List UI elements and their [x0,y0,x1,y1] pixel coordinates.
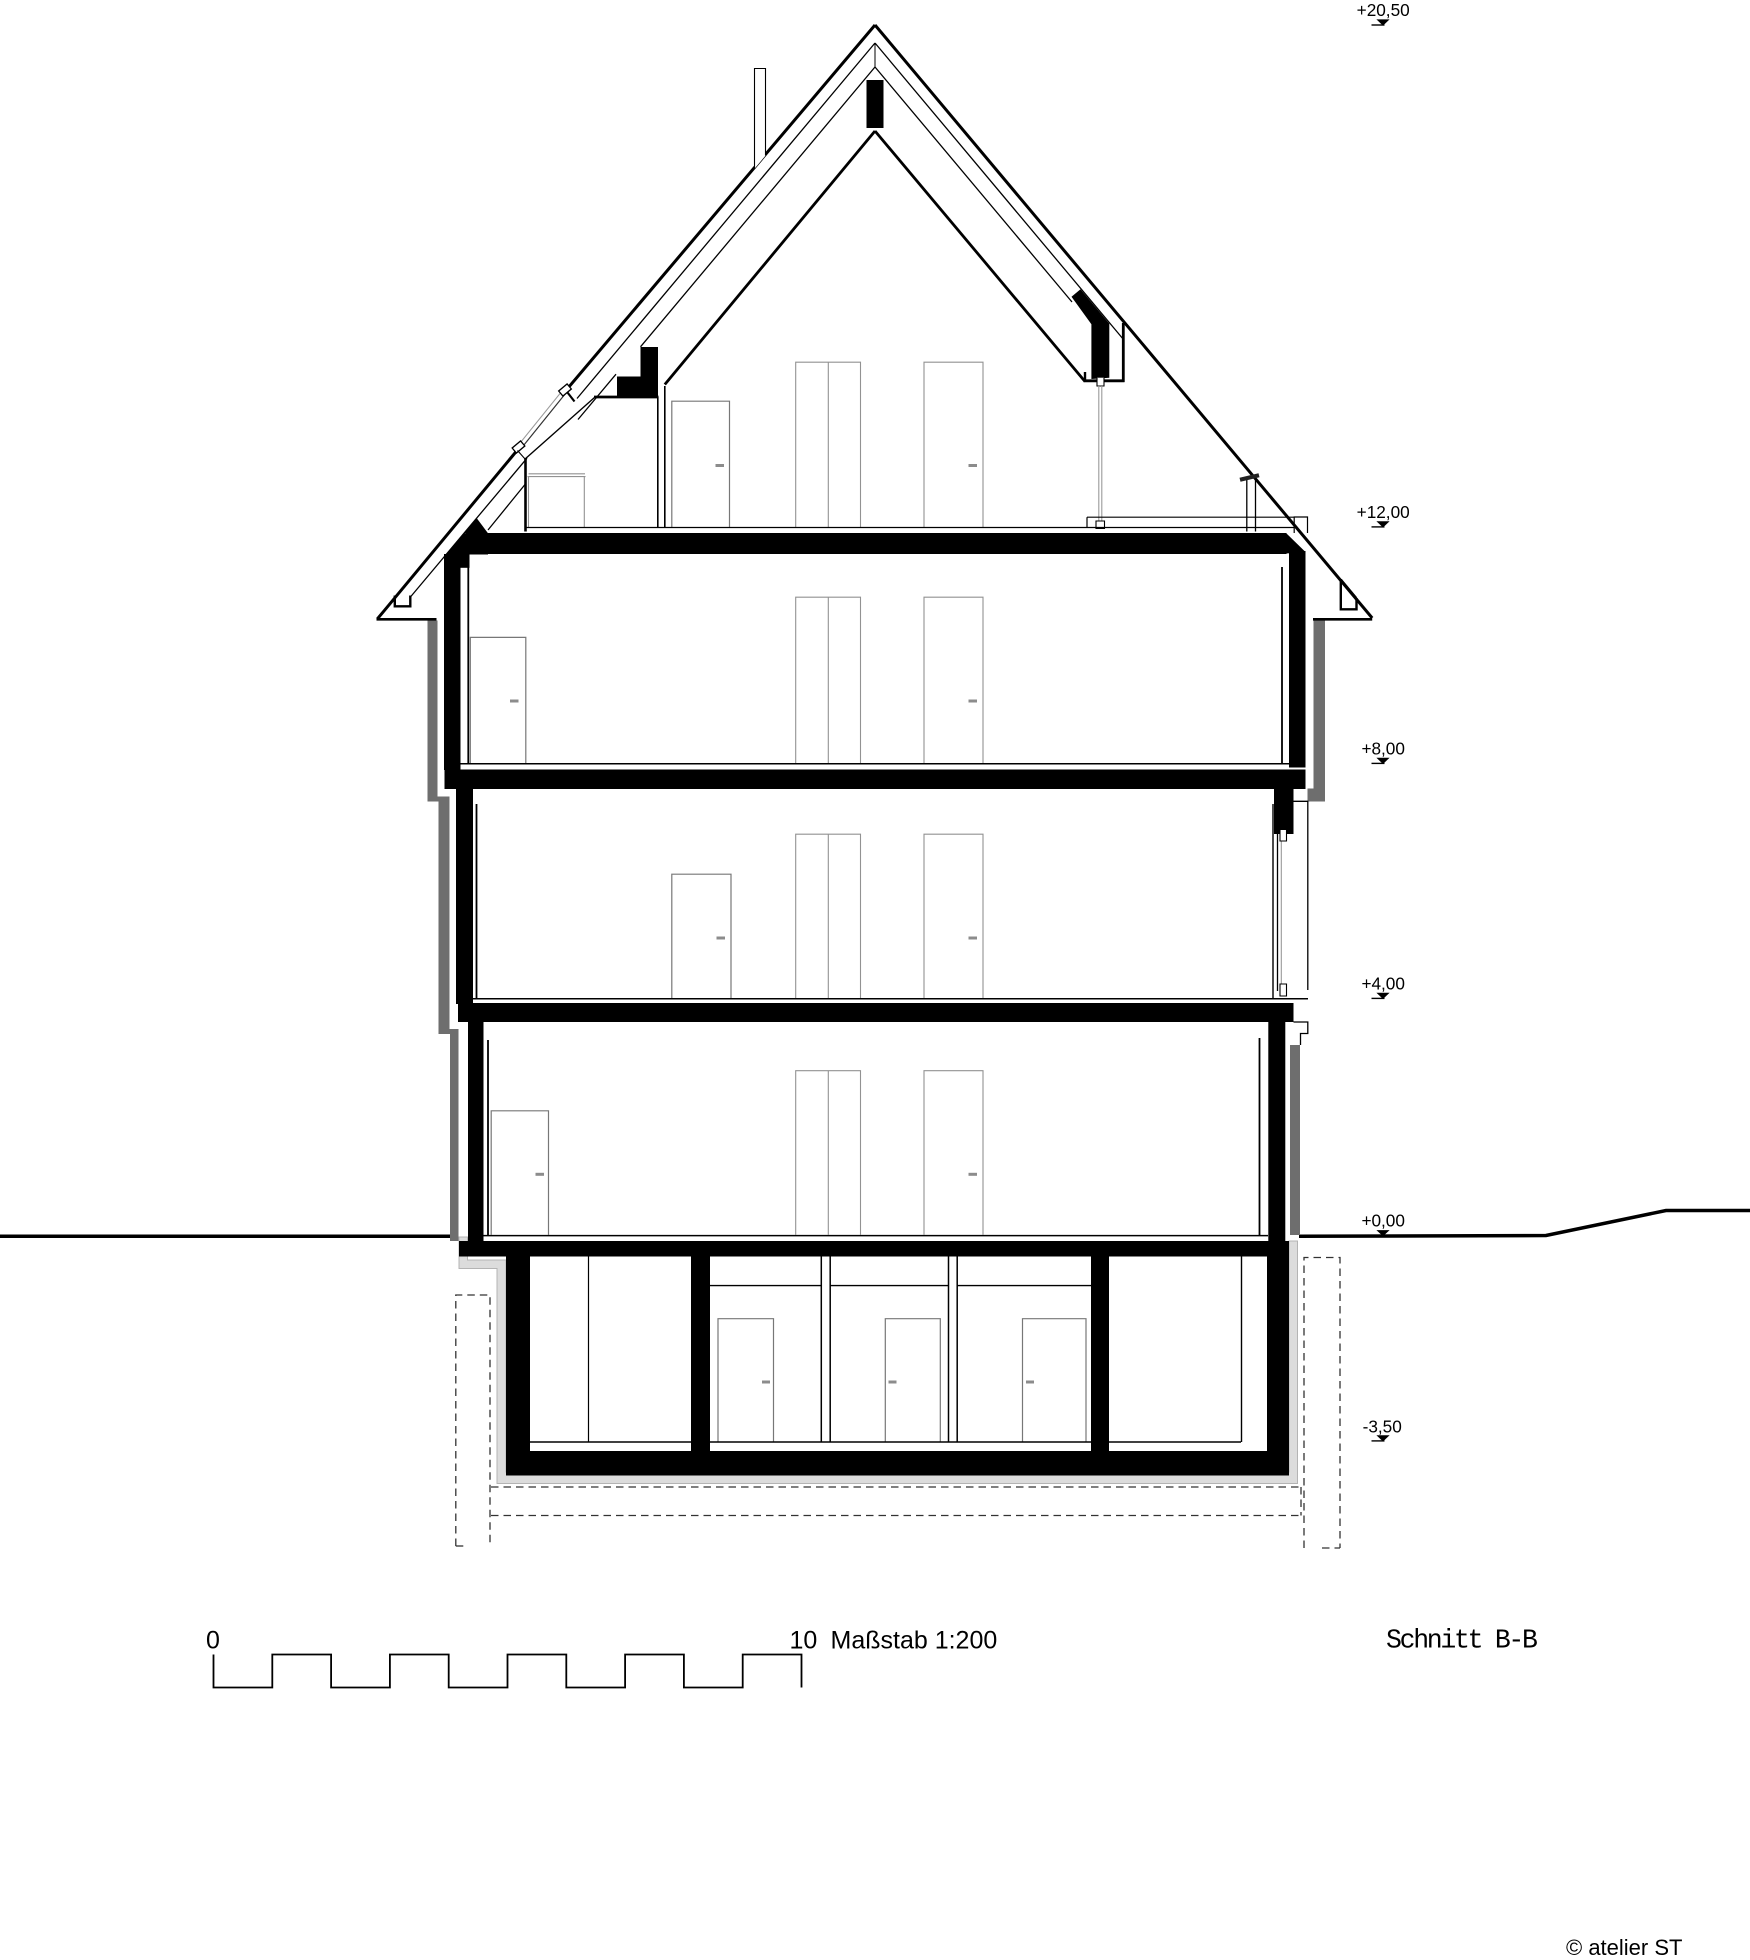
svg-text:Maßstab 1:200: Maßstab 1:200 [831,1627,998,1655]
svg-text:+12,00: +12,00 [1357,502,1410,522]
svg-text:© atelier ST: © atelier ST [1566,1935,1682,1960]
svg-text:+0,00: +0,00 [1361,1211,1405,1231]
svg-text:10: 10 [790,1627,818,1655]
svg-text:+4,00: +4,00 [1361,973,1405,993]
svg-text:-3,50: -3,50 [1363,1417,1402,1437]
svg-text:0: 0 [206,1627,220,1655]
svg-text:Schnitt B-B: Schnitt B-B [1386,1626,1537,1656]
svg-text:+8,00: +8,00 [1361,738,1405,758]
svg-text:+20,50: +20,50 [1357,0,1410,20]
